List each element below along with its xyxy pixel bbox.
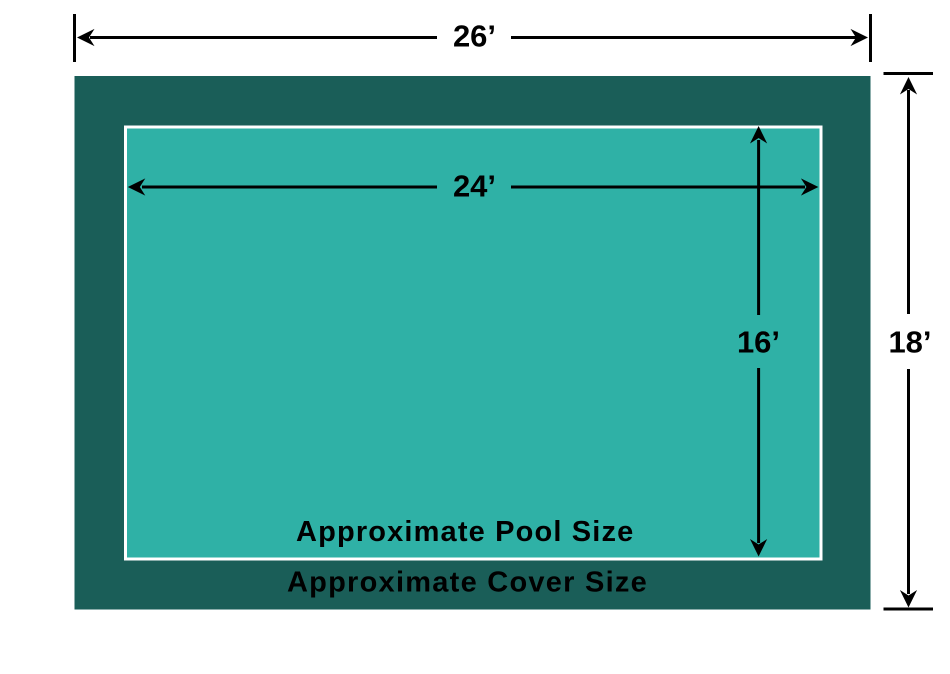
svg-text:Approximate Cover Size: Approximate Cover Size — [287, 567, 648, 599]
svg-text:16’: 16’ — [737, 325, 780, 360]
svg-text:18’: 18’ — [888, 325, 931, 360]
svg-text:26’: 26’ — [453, 19, 496, 54]
svg-text:24’: 24’ — [453, 168, 496, 203]
svg-text:Approximate Pool Size: Approximate Pool Size — [296, 516, 634, 548]
